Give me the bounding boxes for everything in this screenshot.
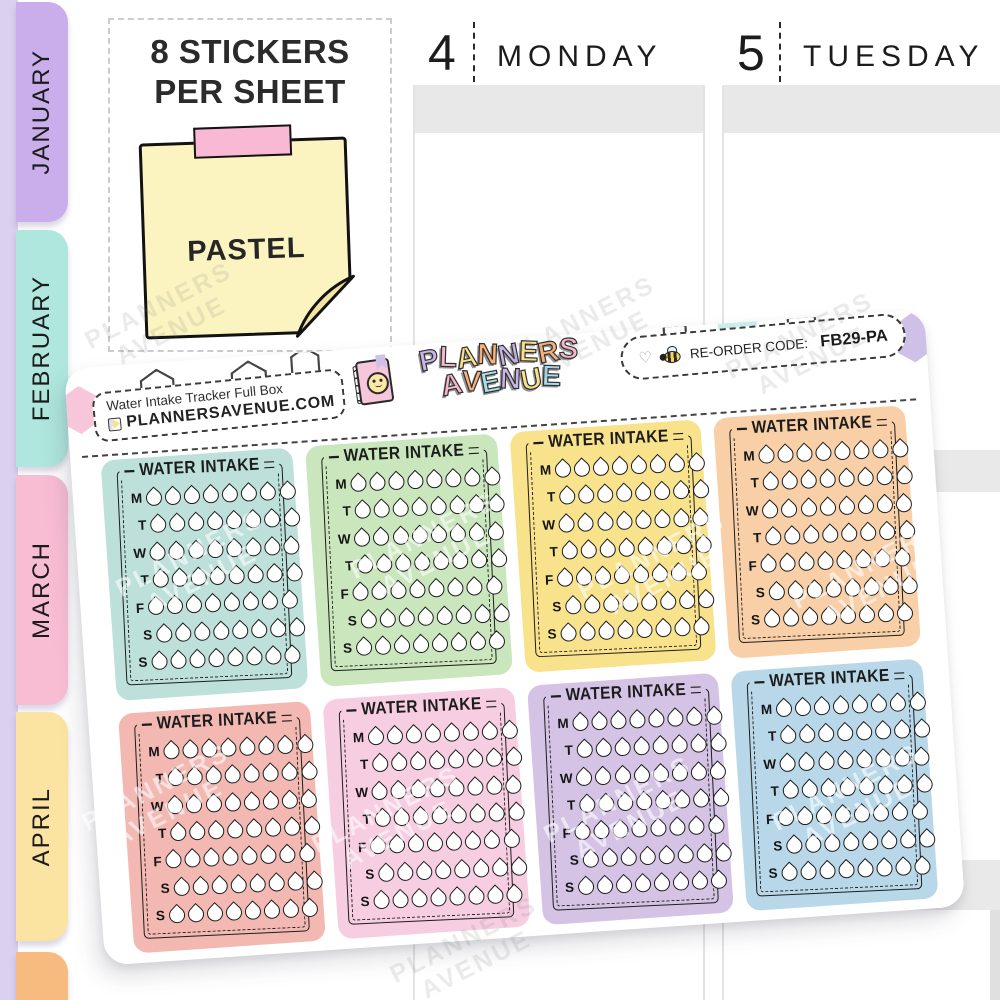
water-drop-icon	[815, 750, 837, 772]
water-drop-icon	[351, 500, 373, 522]
day-letter: T	[158, 826, 167, 841]
day-letter: S	[138, 655, 148, 670]
water-drop-icon	[856, 604, 878, 626]
water-drop-icon	[561, 595, 583, 617]
water-drop-icon	[796, 751, 818, 773]
water-drop-icon	[257, 845, 279, 867]
tracker-day-row: F	[544, 561, 688, 593]
water-drop-icon	[551, 458, 573, 480]
water-drop-icon	[613, 483, 635, 505]
day-letter: S	[773, 838, 783, 853]
water-drop-icon	[446, 495, 468, 517]
tracker-day-row: F	[766, 800, 910, 832]
water-drop-icon	[777, 724, 799, 746]
water-drop-icon	[465, 885, 487, 907]
water-drop-icon	[647, 817, 669, 839]
month-tab-label: MARCH	[28, 541, 56, 639]
water-drop-icon	[593, 484, 615, 506]
water-drop-icon	[797, 861, 819, 883]
month-tab-february: FEBRUARY	[16, 230, 68, 467]
water-intake-sticker: WATER INTAKE MTWTFSS	[118, 700, 326, 953]
water-drop-icon	[487, 548, 509, 570]
tracker-frame: WATER INTAKE MTWTFSS	[321, 449, 496, 671]
day-letter: T	[751, 476, 760, 491]
brand-logo: PLANNERS AVENUE	[393, 334, 606, 403]
water-drop-icon	[857, 522, 879, 544]
water-drop-icon	[425, 777, 447, 799]
tracker-day-row: S	[773, 827, 917, 859]
water-drop-icon	[164, 595, 186, 617]
water-drop-icon	[651, 481, 673, 503]
water-drop-icon	[690, 788, 712, 810]
water-drop-icon	[594, 792, 616, 814]
day-letter: W	[355, 784, 368, 800]
water-drop-icon	[671, 789, 693, 811]
water-drop-icon	[872, 549, 894, 571]
water-drop-icon	[910, 746, 932, 768]
water-drop-icon	[490, 603, 512, 625]
water-drop-icon	[298, 761, 320, 783]
tracker-frame: WATER INTAKE MTWTFSS	[338, 702, 513, 924]
water-drop-icon	[849, 694, 871, 716]
water-drop-icon	[204, 539, 226, 561]
day-letter: S	[756, 585, 766, 600]
water-drop-icon	[448, 632, 470, 654]
tracker-day-row: T	[753, 519, 897, 551]
water-drop-icon	[802, 833, 824, 855]
water-drop-icon	[851, 803, 873, 825]
water-drop-icon	[837, 605, 859, 627]
water-drop-icon	[371, 807, 393, 829]
water-intake-sticker: WATER INTAKE MTWTFSS	[713, 405, 921, 658]
heading-line1: 8 STICKERS	[110, 32, 390, 72]
water-drop-icon	[184, 903, 206, 925]
water-drop-icon	[242, 509, 264, 531]
water-drop-icon	[260, 762, 282, 784]
day-letter: M	[539, 462, 551, 478]
water-drop-icon	[389, 525, 411, 547]
water-drop-icon	[366, 835, 388, 857]
water-drop-icon	[821, 832, 843, 854]
day-letter: S	[547, 627, 557, 642]
water-drop-icon	[172, 622, 194, 644]
water-drop-icon	[629, 565, 651, 587]
water-drop-icon	[255, 735, 277, 757]
water-drop-icon	[248, 619, 270, 641]
water-drop-icon	[466, 803, 488, 825]
water-drop-icon	[916, 828, 938, 850]
month-tab-label: JANUARY	[28, 49, 56, 175]
water-drop-icon	[875, 775, 897, 797]
water-drop-icon	[818, 777, 840, 799]
water-drop-icon	[911, 718, 933, 740]
water-drop-icon	[369, 753, 391, 775]
water-drop-icon	[671, 618, 693, 640]
day-letter: T	[546, 490, 555, 505]
day-letter: S	[360, 894, 370, 909]
water-drop-icon	[370, 526, 392, 548]
water-intake-sticker: WATER INTAKE MTWTFSS	[100, 448, 308, 701]
water-drop-icon	[147, 541, 169, 563]
water-drop-icon	[797, 497, 819, 519]
water-drop-icon	[502, 746, 524, 768]
title-flank-lines	[264, 461, 274, 468]
water-drop-icon	[300, 815, 322, 837]
water-drop-icon	[221, 792, 243, 814]
day-letter: W	[337, 531, 350, 547]
water-drop-icon	[392, 553, 414, 575]
water-drop-icon	[186, 821, 208, 843]
water-drop-icon	[676, 590, 698, 612]
tracker-day-row: W	[355, 773, 499, 805]
water-drop-icon	[687, 733, 709, 755]
month-tab-label: FEBRUARY	[28, 275, 56, 421]
water-drop-icon	[618, 592, 640, 614]
tracker-day-row: M	[335, 465, 479, 497]
water-drop-icon	[202, 792, 224, 814]
water-drop-icon	[804, 579, 826, 601]
water-drop-icon	[430, 551, 452, 573]
water-drop-icon	[811, 695, 833, 717]
water-drop-icon	[612, 874, 634, 896]
day-letter: S	[768, 866, 778, 881]
water-drop-icon	[441, 722, 463, 744]
water-drop-icon	[796, 724, 818, 746]
water-drop-icon	[447, 804, 469, 826]
tracker-day-row: T	[564, 731, 708, 763]
water-drop-icon	[227, 874, 249, 896]
title-flank-line	[737, 427, 747, 430]
water-drop-icon	[166, 513, 188, 535]
tracker-day-row: F	[153, 842, 297, 874]
water-drop-icon	[593, 511, 615, 533]
title-flank-line	[754, 680, 764, 683]
water-drop-icon	[800, 525, 822, 547]
tracker-day-row: T	[155, 760, 299, 792]
water-drop-icon	[757, 554, 779, 576]
water-drop-icon	[608, 456, 630, 478]
water-drop-icon	[236, 736, 258, 758]
water-drop-icon	[366, 472, 388, 494]
water-drop-icon	[191, 622, 213, 644]
water-drop-icon	[408, 525, 430, 547]
water-drop-icon	[185, 512, 207, 534]
tracker-rows: MTWTFSS	[539, 451, 690, 647]
water-drop-icon	[760, 472, 782, 494]
water-drop-icon	[631, 510, 653, 532]
day-letter: F	[153, 853, 162, 868]
water-drop-icon	[286, 617, 308, 639]
water-drop-icon	[165, 904, 187, 926]
water-drop-icon	[463, 577, 485, 599]
water-drop-icon	[633, 791, 655, 813]
water-drop-icon	[558, 540, 580, 562]
water-drop-icon	[468, 549, 490, 571]
water-drop-icon	[406, 580, 428, 602]
water-drop-icon	[799, 778, 821, 800]
water-drop-icon	[796, 552, 818, 574]
pencil-icon	[108, 417, 123, 431]
water-drop-icon	[371, 636, 393, 658]
tracker-day-row: T	[750, 464, 894, 496]
day-letter: S	[564, 880, 574, 895]
tracker-day-row: W	[133, 534, 277, 566]
sticker-count-heading: 8 STICKERS PER SHEET	[110, 32, 390, 113]
water-drop-icon	[670, 480, 692, 502]
water-drop-icon	[221, 764, 243, 786]
water-drop-icon	[279, 761, 301, 783]
water-drop-icon	[304, 870, 326, 892]
water-drop-icon	[166, 540, 188, 562]
water-drop-icon	[185, 540, 207, 562]
water-drop-icon	[200, 847, 222, 869]
tracker-frame: WATER INTAKE MTWTFSS	[525, 435, 700, 657]
water-drop-icon	[631, 873, 653, 895]
tracker-day-row: S	[347, 602, 491, 634]
water-drop-icon	[823, 578, 845, 600]
day-letter: T	[155, 771, 164, 786]
water-drop-icon	[783, 834, 805, 856]
brand-letter: S	[559, 335, 579, 365]
water-drop-icon	[556, 623, 578, 645]
tracker-day-row: T	[546, 478, 690, 510]
water-drop-icon	[572, 567, 594, 589]
water-drop-icon	[229, 620, 251, 642]
water-drop-icon	[160, 740, 182, 762]
water-drop-icon	[442, 468, 464, 490]
water-drop-icon	[219, 847, 241, 869]
water-drop-icon	[854, 858, 876, 880]
water-drop-icon	[840, 831, 862, 853]
water-drop-icon	[872, 747, 894, 769]
day-letter: M	[148, 744, 160, 760]
water-drop-icon	[765, 581, 787, 603]
water-drop-icon	[589, 457, 611, 479]
tracker-day-row: T	[138, 507, 282, 539]
water-drop-icon	[655, 845, 677, 867]
water-drop-icon	[773, 697, 795, 719]
tracker-day-row: S	[755, 574, 899, 606]
water-drop-icon	[259, 790, 281, 812]
water-drop-icon	[374, 862, 396, 884]
product-title-box: Water Intake Tracker Full Box PLANNERSAV…	[91, 368, 347, 443]
water-drop-icon	[859, 830, 881, 852]
day-separator	[473, 22, 475, 82]
water-drop-icon	[646, 454, 668, 476]
month-tab-april: APRIL	[16, 712, 68, 941]
water-intake-sticker: WATER INTAKE MTWTFSS	[322, 686, 530, 939]
water-drop-icon	[592, 738, 614, 760]
water-drop-icon	[224, 819, 246, 841]
water-drop-icon	[853, 748, 875, 770]
water-drop-icon	[870, 802, 892, 824]
water-drop-icon	[370, 890, 392, 912]
water-drop-icon	[874, 857, 896, 879]
water-drop-icon	[574, 485, 596, 507]
tracker-day-row: M	[130, 480, 274, 512]
water-drop-icon	[555, 513, 577, 535]
water-drop-icon	[241, 763, 263, 785]
water-drop-icon	[855, 495, 877, 517]
water-drop-icon	[483, 747, 505, 769]
water-drop-icon	[387, 580, 409, 602]
water-drop-icon	[573, 766, 595, 788]
water-drop-icon	[164, 767, 186, 789]
water-drop-icon	[481, 830, 503, 852]
water-drop-icon	[167, 822, 189, 844]
water-drop-icon	[762, 526, 784, 548]
water-drop-icon	[202, 594, 224, 616]
water-drop-icon	[842, 578, 864, 600]
title-flank-line	[550, 694, 560, 697]
water-drop-icon	[276, 844, 298, 866]
water-drop-icon	[630, 763, 652, 785]
water-drop-icon	[836, 468, 858, 490]
water-drop-icon	[445, 777, 467, 799]
tracker-day-row: F	[135, 589, 279, 621]
water-drop-icon	[691, 534, 713, 556]
water-drop-icon	[280, 535, 302, 557]
reorder-label: RE-ORDER CODE:	[689, 335, 808, 361]
day-letter: F	[766, 811, 775, 826]
day-letter: W	[559, 770, 572, 786]
water-drop-icon	[385, 471, 407, 493]
water-drop-icon	[164, 794, 186, 816]
day-letter: W	[746, 503, 759, 519]
day-letter: S	[156, 908, 166, 923]
water-drop-icon	[580, 594, 602, 616]
water-drop-icon	[778, 498, 800, 520]
water-drop-icon	[223, 901, 245, 923]
water-drop-icon	[834, 722, 856, 744]
water-drop-icon	[351, 527, 373, 549]
water-drop-icon	[798, 470, 820, 492]
water-drop-icon	[484, 885, 506, 907]
tracker-day-row: S	[364, 855, 508, 887]
water-drop-icon	[243, 818, 265, 840]
water-drop-icon	[162, 486, 184, 508]
water-drop-icon	[598, 847, 620, 869]
water-drop-icon	[674, 844, 696, 866]
water-drop-icon	[207, 566, 229, 588]
water-drop-icon	[153, 623, 175, 645]
water-drop-icon	[836, 495, 858, 517]
tracker-frame: WATER INTAKE MTWTFSS	[543, 688, 718, 910]
water-drop-icon	[611, 737, 633, 759]
tracker-day-row: W	[541, 506, 685, 538]
folded-corner-icon	[293, 274, 357, 338]
water-drop-icon	[368, 581, 390, 603]
water-drop-icon	[387, 779, 409, 801]
water-drop-icon	[688, 870, 710, 892]
month-tab-partial	[16, 952, 68, 1000]
day-letter: T	[771, 783, 780, 798]
water-drop-icon	[851, 440, 873, 462]
water-drop-icon	[837, 777, 859, 799]
water-drop-icon	[652, 618, 674, 640]
water-drop-icon	[893, 493, 915, 515]
water-drop-icon	[913, 773, 935, 795]
tracker-day-row: F	[748, 547, 892, 579]
water-drop-icon	[445, 749, 467, 771]
water-drop-icon	[484, 521, 506, 543]
heart-icon: ♡	[638, 348, 653, 367]
water-drop-icon	[452, 605, 474, 627]
water-drop-icon	[505, 801, 527, 823]
water-drop-icon	[189, 875, 211, 897]
water-drop-icon	[626, 709, 648, 731]
tracker-rows: MTWTFSS	[743, 437, 894, 633]
tracker-rows: MTWTFSS	[335, 465, 486, 661]
day-letter: T	[138, 518, 147, 533]
water-drop-icon	[650, 872, 672, 894]
day-letter: T	[360, 757, 369, 772]
water-drop-icon	[593, 875, 615, 897]
day-letter: M	[743, 448, 755, 464]
water-drop-icon	[238, 482, 260, 504]
water-drop-icon	[385, 834, 407, 856]
day-letter: T	[564, 743, 573, 758]
title-flank-lines	[877, 418, 887, 425]
water-drop-icon	[793, 443, 815, 465]
tracker-day-row: T	[770, 772, 914, 804]
day-letter: S	[160, 880, 170, 895]
water-drop-icon	[261, 509, 283, 531]
water-drop-icon	[819, 524, 841, 546]
water-drop-icon	[891, 719, 913, 741]
water-drop-icon	[628, 818, 650, 840]
water-drop-icon	[668, 563, 690, 585]
water-drop-icon	[855, 467, 877, 489]
day-letter: W	[542, 517, 555, 533]
water-drop-icon	[599, 593, 621, 615]
water-drop-icon	[672, 535, 694, 557]
water-drop-icon	[508, 856, 530, 878]
water-drop-icon	[246, 873, 268, 895]
water-drop-icon	[183, 793, 205, 815]
water-drop-icon	[832, 441, 854, 463]
water-drop-icon	[877, 521, 899, 543]
water-drop-icon	[354, 555, 376, 577]
water-drop-icon	[868, 693, 890, 715]
tracker-day-row: S	[551, 588, 695, 620]
tracker-day-row: S	[160, 869, 304, 901]
water-drop-icon	[464, 748, 486, 770]
water-drop-icon	[573, 739, 595, 761]
tracker-rows: MTWTFSS	[130, 480, 281, 676]
water-drop-icon	[896, 520, 918, 542]
day-letter: T	[768, 728, 777, 743]
water-drop-icon	[238, 846, 260, 868]
month-tab-march: MARCH	[16, 475, 68, 705]
water-drop-icon	[265, 872, 287, 894]
water-drop-icon	[181, 485, 203, 507]
water-drop-icon	[183, 595, 205, 617]
water-drop-icon	[779, 471, 801, 493]
water-drop-icon	[579, 848, 601, 870]
water-drop-icon	[627, 455, 649, 477]
water-drop-icon	[835, 859, 857, 881]
water-drop-icon	[467, 632, 489, 654]
tracker-day-row: W	[559, 759, 703, 791]
water-drop-icon	[649, 735, 671, 757]
water-drop-icon	[204, 511, 226, 533]
tracker-day-row: W	[150, 787, 294, 819]
water-drop-icon	[433, 606, 455, 628]
water-drop-icon	[574, 512, 596, 534]
pastel-note-illustration: PASTEL	[139, 136, 354, 339]
water-drop-icon	[755, 444, 777, 466]
